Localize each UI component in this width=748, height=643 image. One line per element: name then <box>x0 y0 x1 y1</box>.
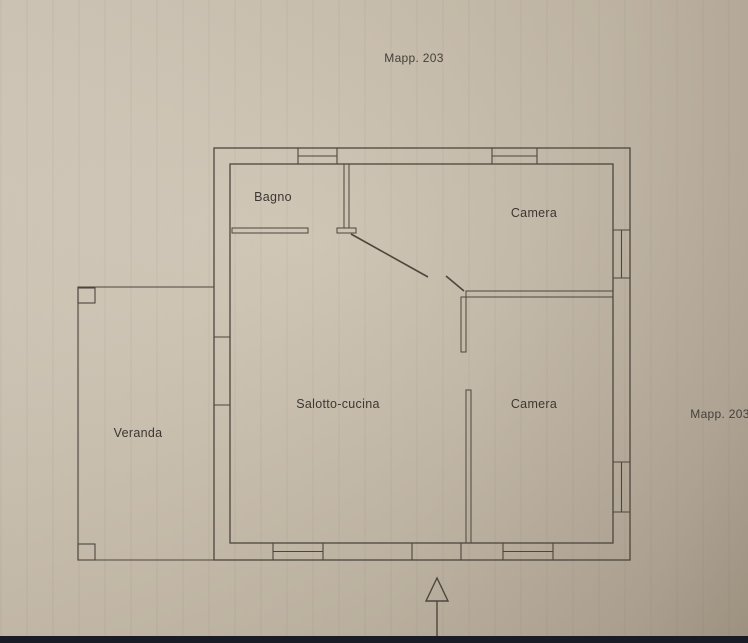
camera-top-wall-horizontal <box>466 291 613 297</box>
divider-wall-upper-stub <box>461 297 466 352</box>
room-label-camera-bottom: Camera <box>511 397 557 411</box>
interior-walls <box>232 164 613 543</box>
outer-wall-line <box>214 148 630 560</box>
window-bottom-right <box>503 543 553 560</box>
photo-edge-bar <box>0 636 748 643</box>
veranda-structure <box>78 287 214 560</box>
floorplan-drawing: Mapp. 203 Mapp. 203 Bagno Camera Camera … <box>0 0 748 643</box>
window-top-right <box>492 148 537 164</box>
camera-top-door-leaf <box>446 276 464 291</box>
entrance-door-bay <box>412 543 461 560</box>
window-bottom-left <box>273 543 323 560</box>
entrance-arrow-icon <box>426 578 448 637</box>
window-top-left <box>298 148 337 164</box>
room-label-bagno: Bagno <box>254 190 292 204</box>
bagno-wall-vertical <box>344 164 349 228</box>
veranda-post-top <box>78 288 95 303</box>
map-label-top: Mapp. 203 <box>384 51 443 65</box>
window-right-lower <box>613 462 630 512</box>
wall-openings <box>214 148 630 560</box>
bagno-wall-foot <box>337 228 356 233</box>
bagno-wall-horizontal <box>232 228 308 233</box>
labels: Mapp. 203 Mapp. 203 Bagno Camera Camera … <box>114 51 748 440</box>
veranda-outline <box>78 287 214 560</box>
map-label-right: Mapp. 203 <box>690 407 748 421</box>
exterior-walls <box>214 148 630 560</box>
veranda-post-bottom <box>78 544 95 560</box>
floorplan-photo: Mapp. 203 Mapp. 203 Bagno Camera Camera … <box>0 0 748 643</box>
inner-wall-line <box>230 164 613 543</box>
window-right-upper <box>613 230 630 278</box>
veranda-door-bay <box>214 337 230 405</box>
room-label-camera-top: Camera <box>511 206 557 220</box>
divider-wall-lower <box>466 390 471 543</box>
room-label-veranda: Veranda <box>114 426 163 440</box>
bagno-door-leaf <box>351 234 428 277</box>
room-label-salotto-cucina: Salotto-cucina <box>296 397 379 411</box>
arrow-head <box>426 578 448 601</box>
